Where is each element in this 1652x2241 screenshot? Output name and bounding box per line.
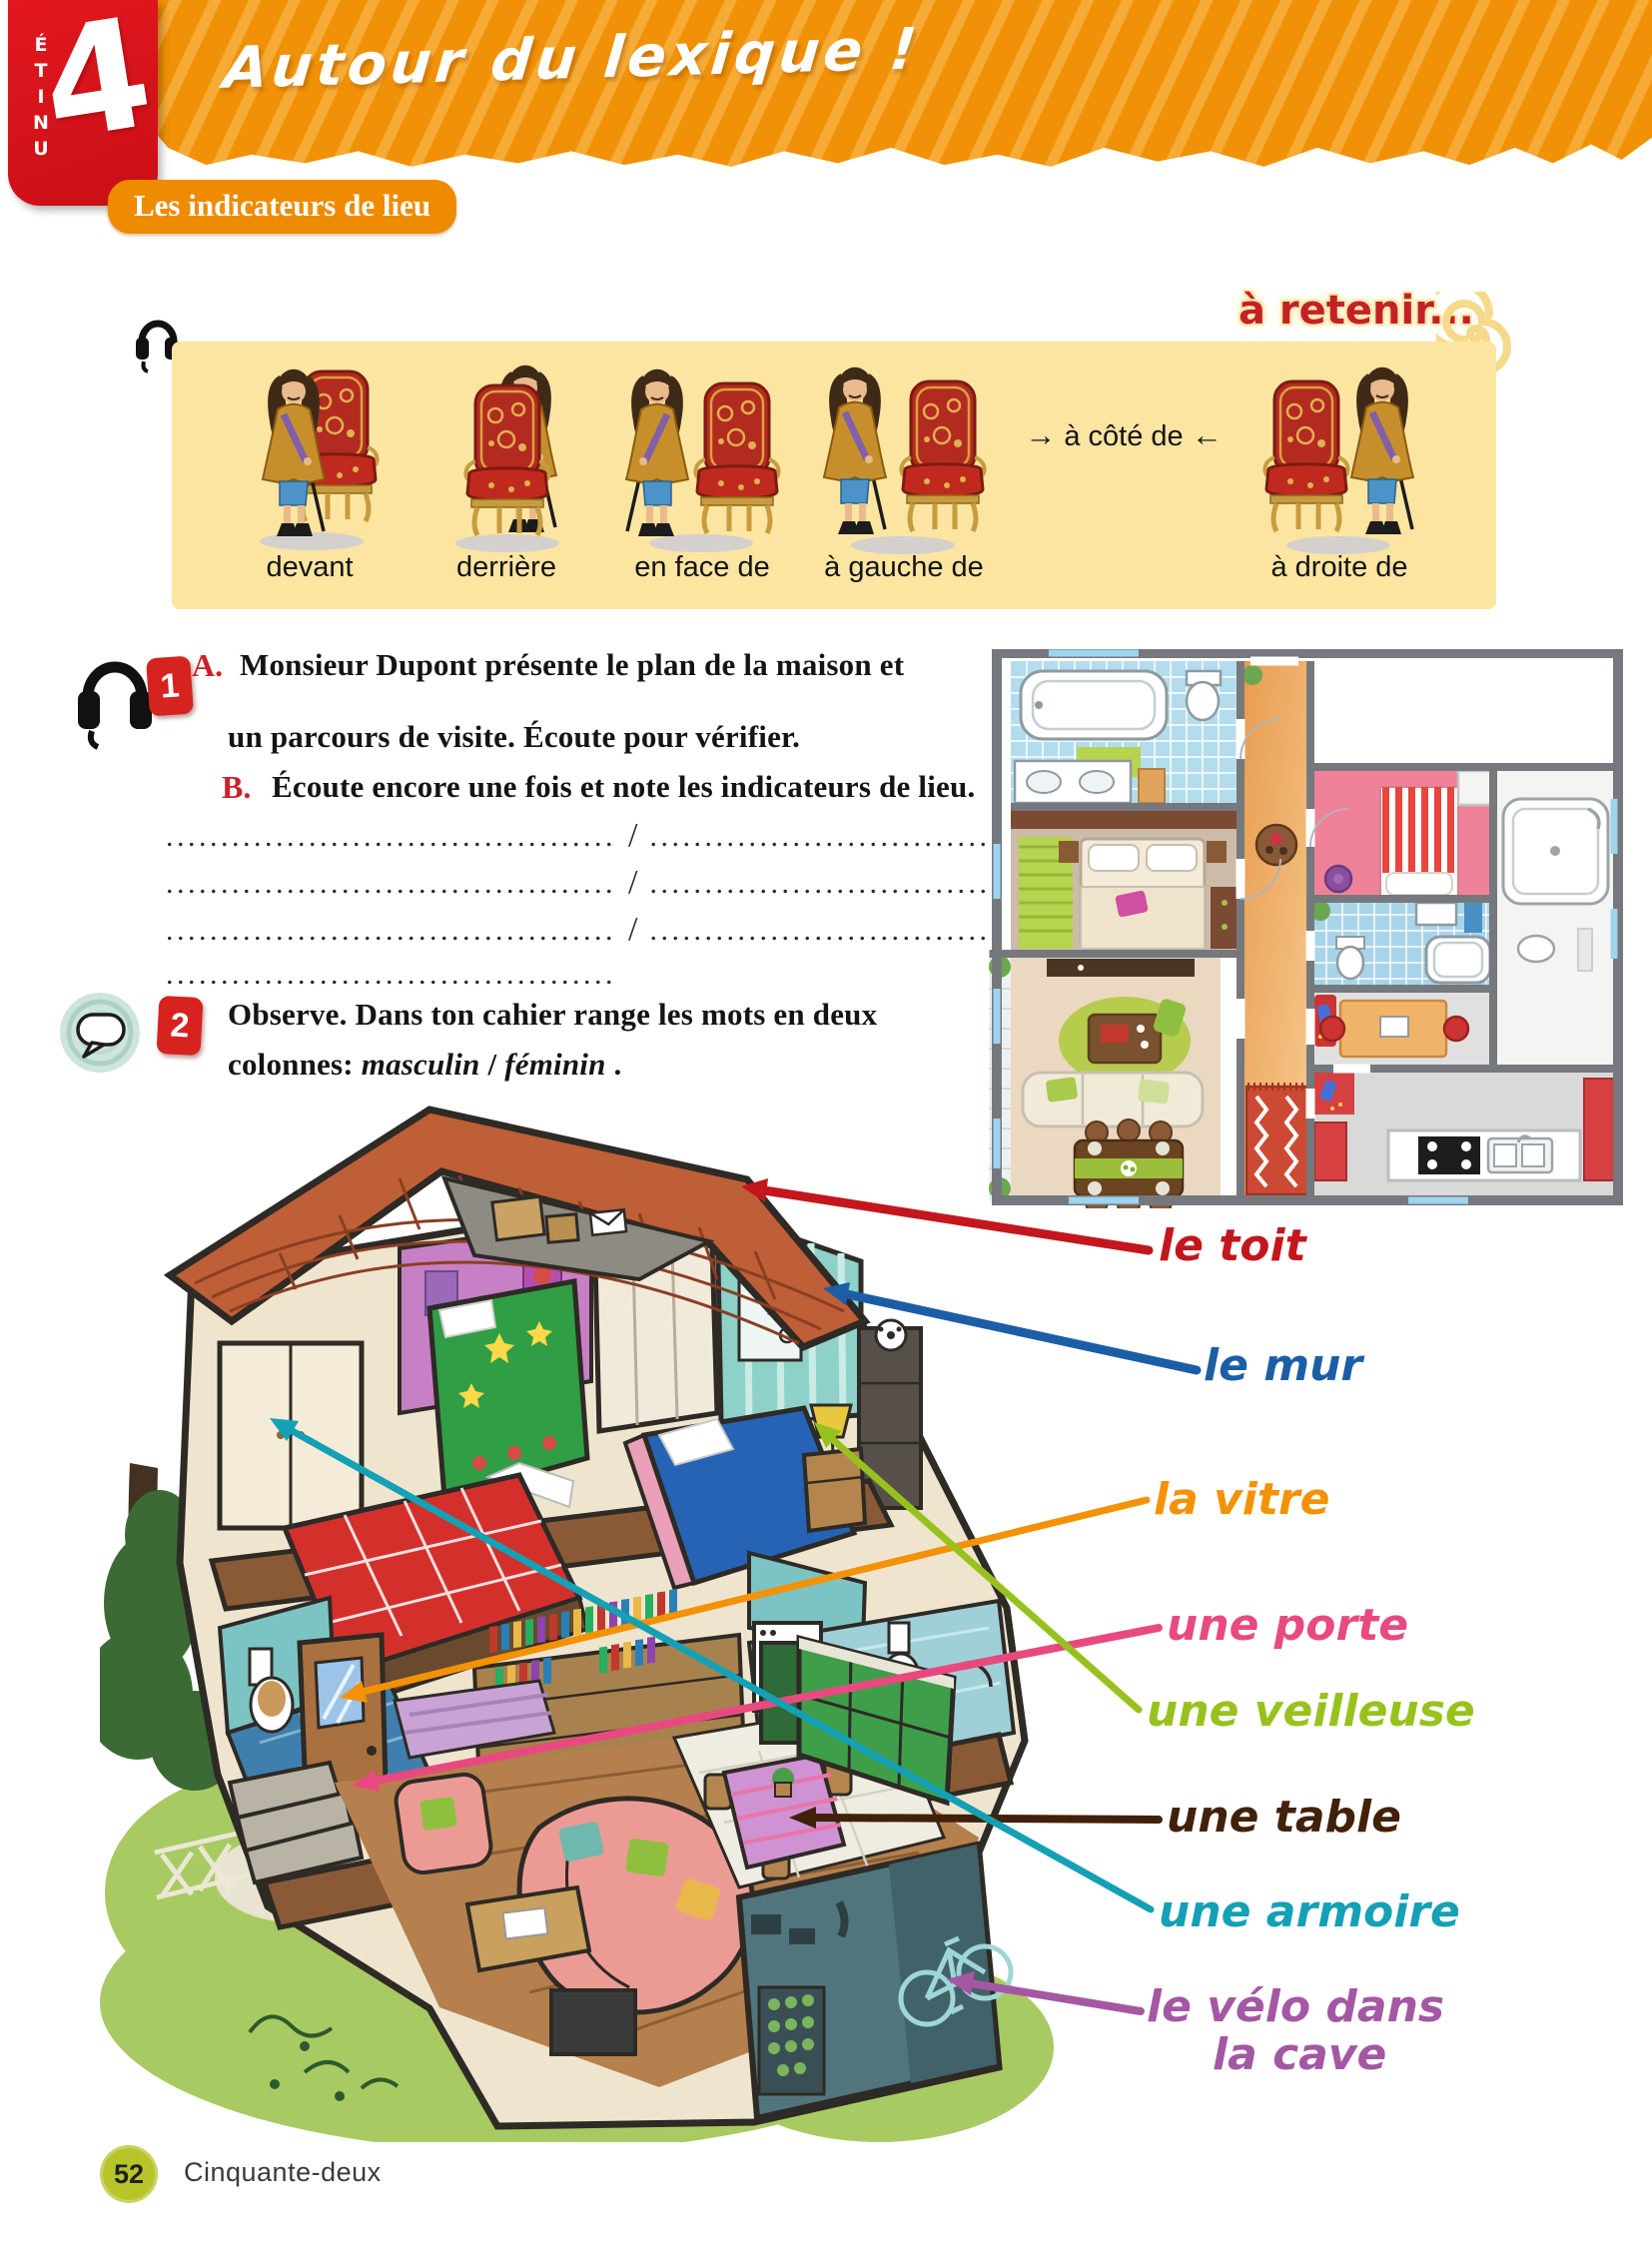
house-label-armoire: une armoire — [1159, 1886, 1460, 1937]
bedroom-parents — [220, 1343, 362, 1528]
figure-devant — [260, 370, 378, 550]
plan-bedroom — [1011, 807, 1240, 954]
page-number-word: Cinquante-deux — [184, 2157, 382, 2188]
house-cutaway-illustration — [100, 1084, 1059, 2142]
right-arrow-icon: → — [1025, 417, 1056, 452]
section-tag: Les indicateurs de lieu — [108, 180, 456, 234]
textbook-page: Autour du lexique ! U N I T É 4 Les indi… — [0, 0, 1652, 2241]
plan-bathroom-main — [1011, 661, 1240, 807]
house-label-porte: une porte — [1167, 1600, 1408, 1651]
house-label-table: une table — [1167, 1792, 1401, 1843]
exercise-1a-text-line1: Monsieur Dupont présente le plan de la m… — [240, 647, 904, 683]
figure-derriere — [455, 366, 559, 552]
plan-kids-bedroom — [1310, 767, 1493, 899]
unit-letter: U — [30, 138, 52, 160]
plan-bathroom-small — [1310, 899, 1493, 989]
left-arrow-icon: ← — [1192, 417, 1223, 452]
exercise-1a-letter: A. — [192, 647, 223, 684]
position-word-a-cote-de: → à côté de ← — [1017, 417, 1231, 453]
exercise-1b-letter: B. — [222, 769, 251, 806]
house-label-toit: le toit — [1159, 1220, 1306, 1271]
house-label-veilleuse: une veilleuse — [1147, 1686, 1475, 1737]
exercise-1-number: 1 — [146, 656, 194, 717]
house-label-velo-line2: la cave — [1213, 2029, 1386, 2080]
headphones-icon — [76, 633, 154, 755]
speech-bubble-icon — [58, 991, 142, 1075]
page-number-badge: 52 — [100, 2145, 158, 2203]
house-label-vitre: la vitre — [1154, 1474, 1329, 1525]
position-word-a-gauche-de: à gauche de — [804, 551, 1004, 584]
answer-blank-row: ........................................… — [166, 911, 1100, 949]
exercise-1b-text: Écoute encore une fois et note les indic… — [272, 769, 975, 805]
figure-a-gauche-de — [824, 368, 985, 554]
position-word-a-droite-de: à droite de — [1239, 551, 1439, 584]
unit-number: 4 — [33, 0, 161, 163]
floor-plan-illustration — [989, 649, 1628, 1208]
exercise-2-number: 2 — [157, 996, 204, 1056]
answer-blank-row: ........................................… — [166, 817, 1100, 855]
exercise-1a-text-line2: un parcours de visite. Écoute pour vérif… — [228, 719, 800, 755]
answer-blank-row: ........................................… — [166, 864, 1100, 902]
position-word-en-face-de: en face de — [602, 551, 802, 584]
exercise-2-text-line2: colonnes: masculin / féminin . — [228, 1047, 621, 1083]
house-label-mur: le mur — [1204, 1340, 1362, 1391]
position-word-devant: devant — [210, 551, 410, 584]
figure-a-droite-de — [1264, 368, 1413, 554]
plan-hallway — [1240, 661, 1310, 1200]
exercise-2-text-line1: Observe. Dans ton cahier range les mots … — [228, 997, 877, 1033]
figure-en-face-de — [626, 370, 779, 552]
plan-kitchen — [1310, 1069, 1618, 1200]
plan-bathroom-right — [1493, 767, 1618, 1069]
answer-blank-row: ........................................… — [166, 958, 616, 992]
house-label-velo-line1: le vélo dans — [1147, 1981, 1444, 2032]
position-word-derriere: derrière — [407, 551, 606, 584]
plan-study — [1310, 989, 1493, 1069]
